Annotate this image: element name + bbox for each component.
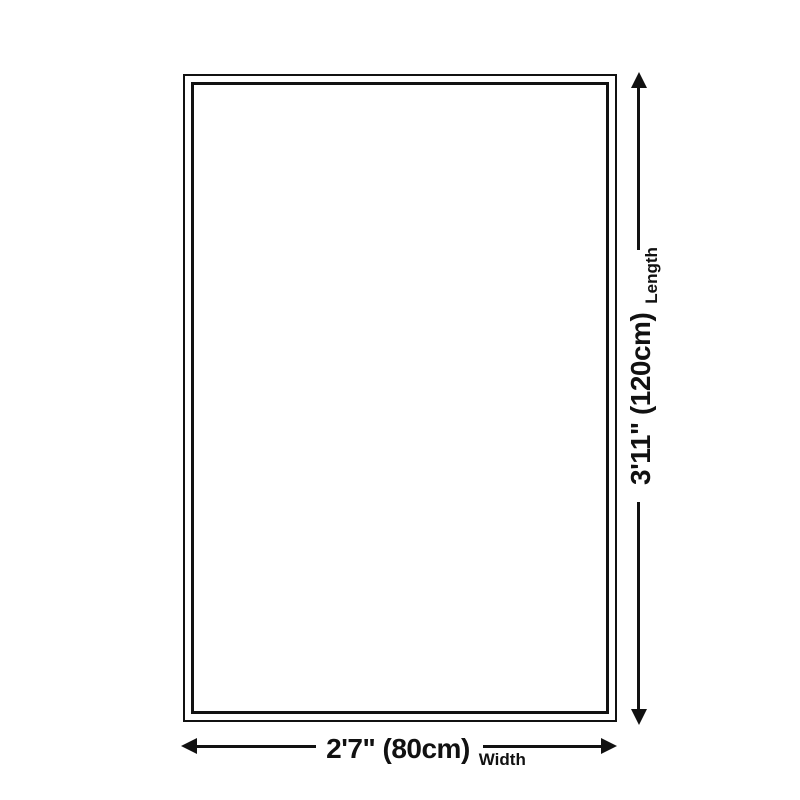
product-inner-border [191,82,609,714]
dimension-diagram: 3'11" (120cm) Length 2'7" (80cm) Width [0,0,800,800]
length-label: 3'11" (120cm) Length [623,226,659,506]
width-dimension-line-right [483,745,602,748]
width-axis-label: Width [479,751,526,768]
right-arrow-icon [601,738,617,754]
length-dimension-line-bottom [637,502,640,710]
down-arrow-icon [631,709,647,725]
length-value: 3'11" (120cm) [627,313,655,485]
product-outline [183,74,617,722]
left-arrow-icon [181,738,197,754]
length-axis-label: Length [643,247,660,304]
up-arrow-icon [631,72,647,88]
width-label: 2'7" (80cm) Width [286,731,566,767]
width-value: 2'7" (80cm) [326,735,470,763]
